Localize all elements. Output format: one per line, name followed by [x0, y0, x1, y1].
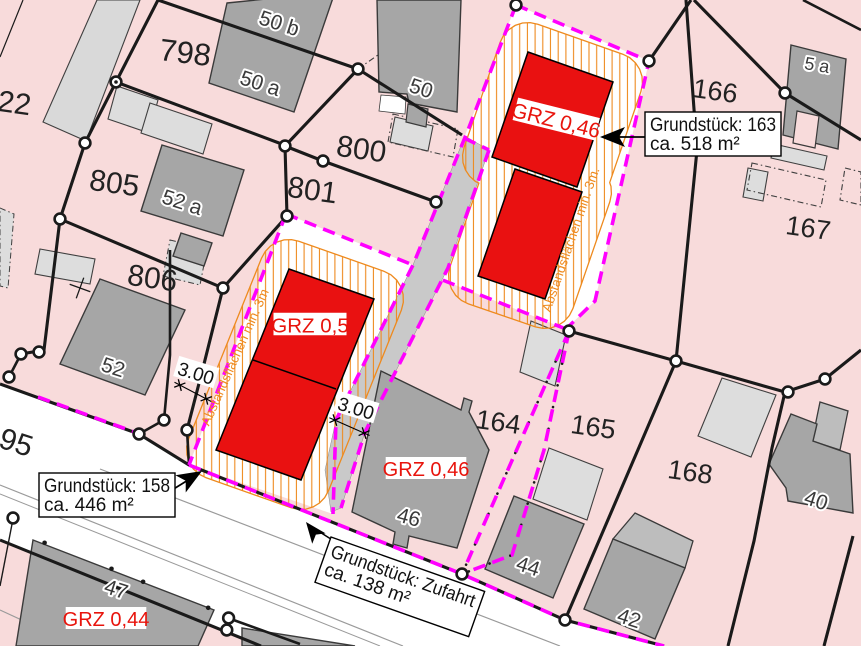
svg-text:165: 165 — [569, 409, 618, 445]
svg-text:166: 166 — [691, 73, 740, 109]
svg-text:798: 798 — [157, 32, 213, 73]
svg-text:805: 805 — [87, 164, 141, 204]
svg-text:164: 164 — [474, 404, 523, 440]
svg-text:Grundstück: 163: Grundstück: 163 — [650, 115, 776, 136]
svg-text:GRZ 0,5: GRZ 0,5 — [271, 314, 348, 337]
svg-text:168: 168 — [666, 454, 715, 490]
svg-text:GRZ 0,46: GRZ 0,46 — [383, 459, 470, 481]
svg-text:ca. 446 m²: ca. 446 m² — [44, 495, 134, 516]
svg-text:22: 22 — [0, 85, 33, 122]
svg-text:GRZ 0,44: GRZ 0,44 — [63, 609, 150, 631]
svg-text:Grundstück: 158: Grundstück: 158 — [44, 476, 170, 497]
svg-text:806: 806 — [125, 259, 179, 299]
svg-text:801: 801 — [285, 171, 339, 211]
svg-text:800: 800 — [334, 130, 388, 170]
svg-text:167: 167 — [784, 210, 833, 246]
svg-text:ca. 518 m²: ca. 518 m² — [650, 134, 740, 155]
